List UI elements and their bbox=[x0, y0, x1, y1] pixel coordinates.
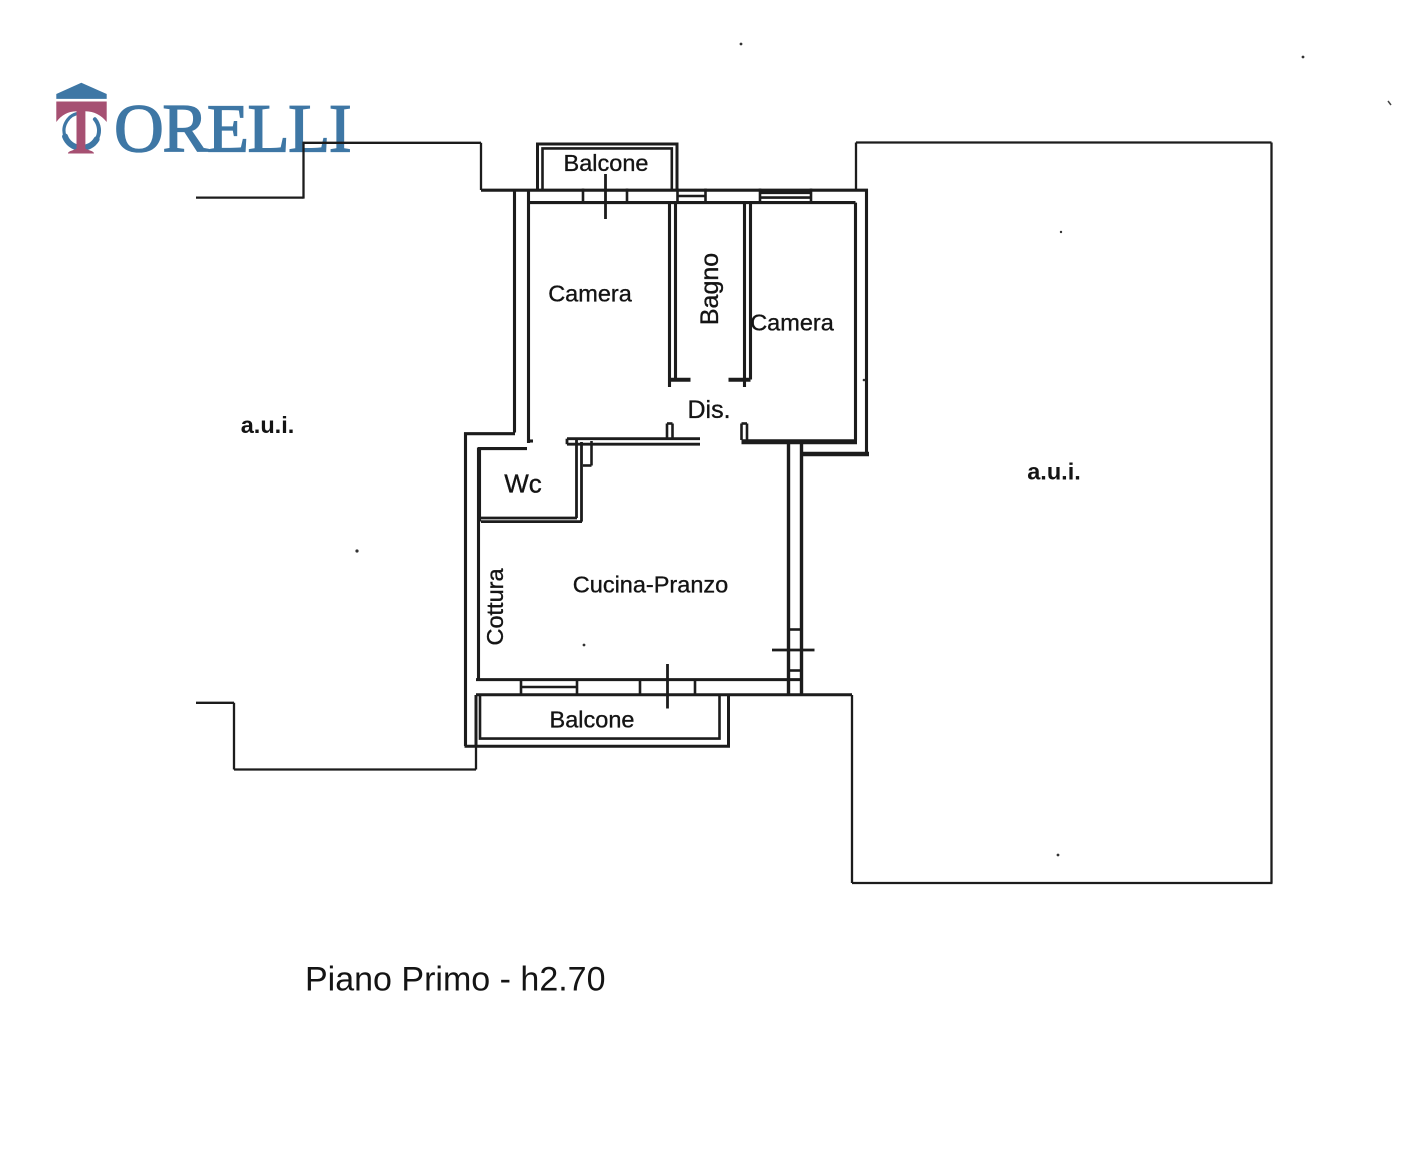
svg-text:Cottura: Cottura bbox=[482, 568, 508, 646]
svg-text:Balcone: Balcone bbox=[550, 707, 635, 733]
svg-text:Camera: Camera bbox=[750, 310, 835, 336]
svg-text:Cucina-Pranzo: Cucina-Pranzo bbox=[573, 572, 728, 598]
svg-text:Camera: Camera bbox=[548, 281, 633, 307]
svg-text:Wc: Wc bbox=[504, 469, 542, 499]
svg-text:Dis.: Dis. bbox=[687, 396, 730, 424]
svg-text:ORELLI: ORELLI bbox=[114, 91, 350, 167]
svg-text:a.u.i.: a.u.i. bbox=[241, 412, 295, 438]
svg-text:Bagno: Bagno bbox=[696, 253, 724, 325]
svg-text:a.u.i.: a.u.i. bbox=[1027, 459, 1081, 485]
svg-text:Piano Primo - h2.70: Piano Primo - h2.70 bbox=[305, 961, 606, 999]
svg-text:Balcone: Balcone bbox=[564, 150, 649, 176]
